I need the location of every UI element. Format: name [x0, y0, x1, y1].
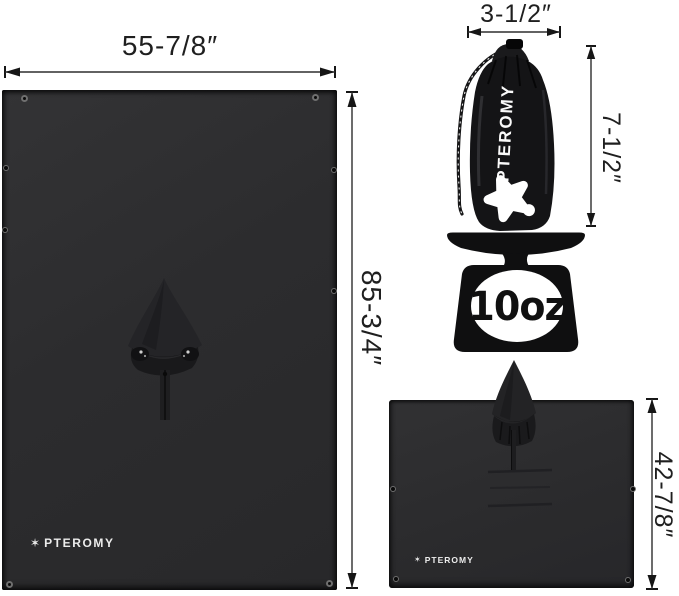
zipper — [511, 430, 516, 470]
grommet-icon — [331, 288, 337, 294]
grommet-icon — [326, 580, 333, 587]
brand-logo-text: PTEROMY — [44, 536, 115, 550]
grommet-icon — [312, 94, 319, 101]
grommet-icon — [2, 227, 8, 233]
flat-width-label: 55-7/8″ — [0, 30, 340, 62]
brand-logo: ✶ PTEROMY — [30, 536, 115, 550]
brand-logo: ✶ PTEROMY — [414, 555, 474, 565]
grommet-icon — [625, 577, 631, 583]
grommet-icon — [393, 576, 399, 582]
chest-pocket — [486, 466, 556, 512]
grommet-icon — [3, 165, 9, 171]
worn-height-label: 42-7/8″ — [649, 420, 677, 570]
grommet-icon — [331, 167, 337, 173]
hood-icon — [116, 274, 216, 424]
flat-height-label: 85-3/4″ — [355, 238, 387, 398]
star-icon: ✶ — [414, 556, 421, 564]
brand-logo-text: PTEROMY — [425, 555, 474, 565]
grommet-icon — [21, 95, 28, 102]
star-icon: ✶ — [30, 537, 40, 549]
flat-poncho-fabric: ✶ PTEROMY — [2, 90, 337, 590]
weight-value: 10oz — [460, 284, 574, 330]
sack-height-label: 7-1/2″ — [597, 86, 625, 210]
product-dimension-diagram: 55-7/8″ — [0, 0, 679, 596]
grommet-icon — [630, 486, 636, 492]
grommet-icon — [390, 486, 396, 492]
grommet-icon — [6, 581, 13, 588]
flat-width-dimension-line — [2, 64, 338, 80]
